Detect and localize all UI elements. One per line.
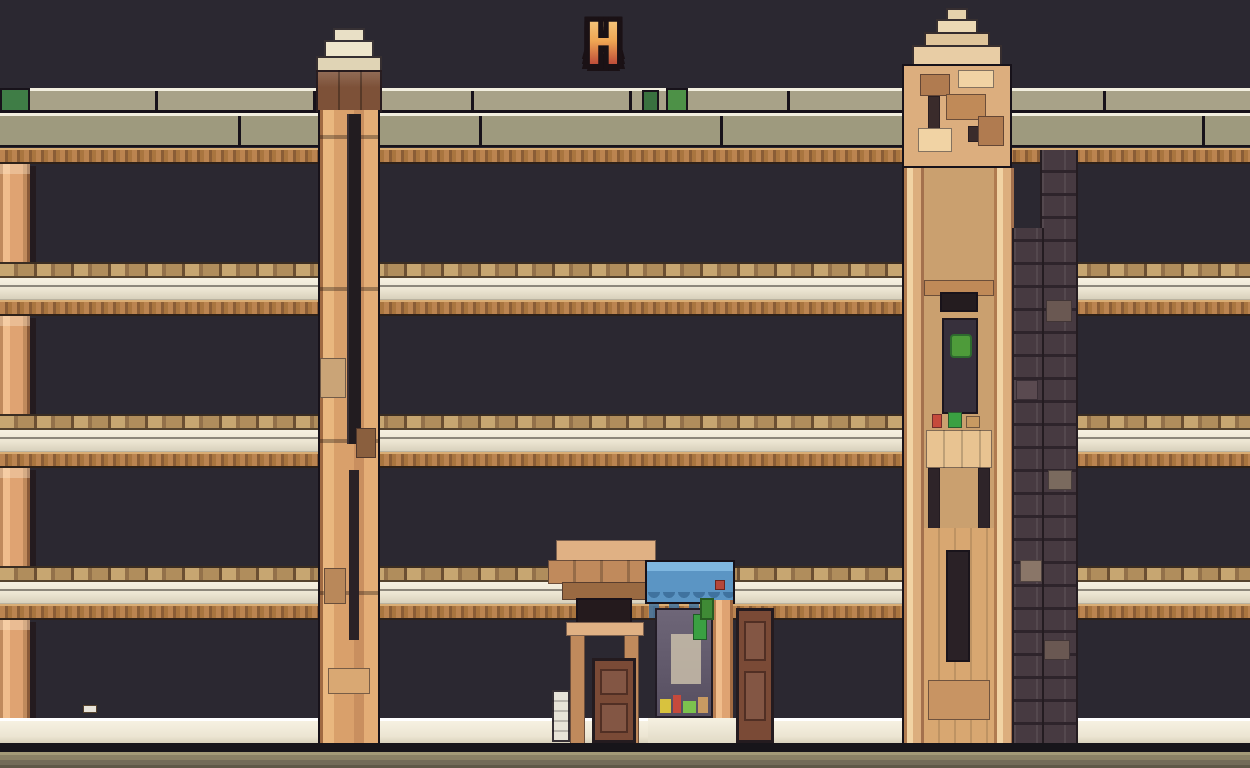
shop-item: [673, 695, 681, 713]
awning-red-button: [715, 580, 725, 590]
entrance-door: [592, 658, 636, 743]
tower-shelf-item-tan: [966, 416, 980, 428]
side-door-panel-top: [744, 621, 766, 661]
left-tower-block-4: [328, 668, 370, 694]
shop-item: [683, 701, 696, 713]
tower-shelf-item-green: [948, 412, 962, 428]
pilaster: [0, 316, 30, 414]
awning-top-band: [647, 562, 733, 571]
tower-lower-slot: [946, 550, 970, 662]
pilaster: [0, 620, 30, 718]
brick-highlight-1: [1046, 300, 1072, 322]
tower-slot-left: [928, 468, 940, 530]
pixel-building-scene: IIIINNAAHHAAHH: [0, 0, 1250, 768]
window: [30, 318, 36, 414]
brick-highlight-3: [1048, 470, 1072, 490]
right-tower-body: [902, 168, 1012, 743]
side-door-panel-bottom: [744, 671, 766, 721]
left-tower-slot-lower: [349, 470, 359, 640]
side-door: [736, 608, 774, 743]
left-tower: [316, 28, 382, 743]
window: [30, 622, 36, 718]
entrance-complex: [548, 540, 780, 745]
left-tower-brown-blocks: [316, 70, 382, 112]
shop-interior-glow: [671, 634, 701, 684]
entrance-door-panel-bottom: [600, 703, 628, 733]
tiny-shop-label: [83, 705, 97, 713]
head-patch-4: [918, 128, 952, 152]
right-tower-step-4: [912, 45, 1002, 66]
tower-shelf-item-red: [932, 414, 942, 428]
window: [30, 166, 36, 262]
tower-recess-window: [942, 318, 978, 414]
right-tower: [902, 8, 1012, 743]
tower-slot-right: [978, 468, 990, 530]
portal-lintel: [566, 622, 644, 636]
entrance-white-sign: [552, 690, 570, 742]
pilaster: [0, 164, 30, 262]
right-tower-pilaster-right: [994, 168, 1014, 743]
head-patch-1: [920, 74, 950, 96]
tower-step-blocks: [926, 430, 992, 468]
shop-items-row: [660, 691, 708, 713]
street: [0, 743, 1250, 768]
left-tower-block-1: [320, 358, 346, 398]
brick-highlight-2: [1016, 380, 1038, 400]
brick-column-main: [1012, 228, 1044, 745]
left-tower-slot: [347, 114, 361, 444]
canopy-beam-1: [556, 540, 656, 562]
entrance-plant: [700, 598, 714, 620]
pilaster: [0, 468, 30, 566]
right-tower-pilaster-left: [904, 168, 924, 743]
brick-highlight-4: [1020, 560, 1042, 582]
left-tower-block-3: [324, 568, 346, 604]
head-slot-1: [928, 96, 940, 130]
entrance-door-panel-top: [600, 669, 628, 695]
tower-base-block: [928, 680, 990, 720]
tower-plant-icon: [950, 334, 972, 358]
sign-letter-fill: H: [586, 12, 621, 76]
head-patch-2: [958, 70, 994, 88]
shop-item: [698, 697, 708, 713]
left-tower-block-2: [356, 428, 376, 458]
head-patch-5: [978, 116, 1004, 146]
shop-item: [660, 699, 671, 713]
right-tower-head: [902, 64, 1012, 168]
brick-highlight-5: [1044, 640, 1070, 660]
shop-awning: [645, 560, 735, 604]
window: [30, 470, 36, 566]
portal-post-left: [570, 630, 585, 745]
tower-plaque: [940, 292, 978, 312]
shop-window: [655, 608, 713, 718]
entrance-base: [648, 718, 736, 745]
